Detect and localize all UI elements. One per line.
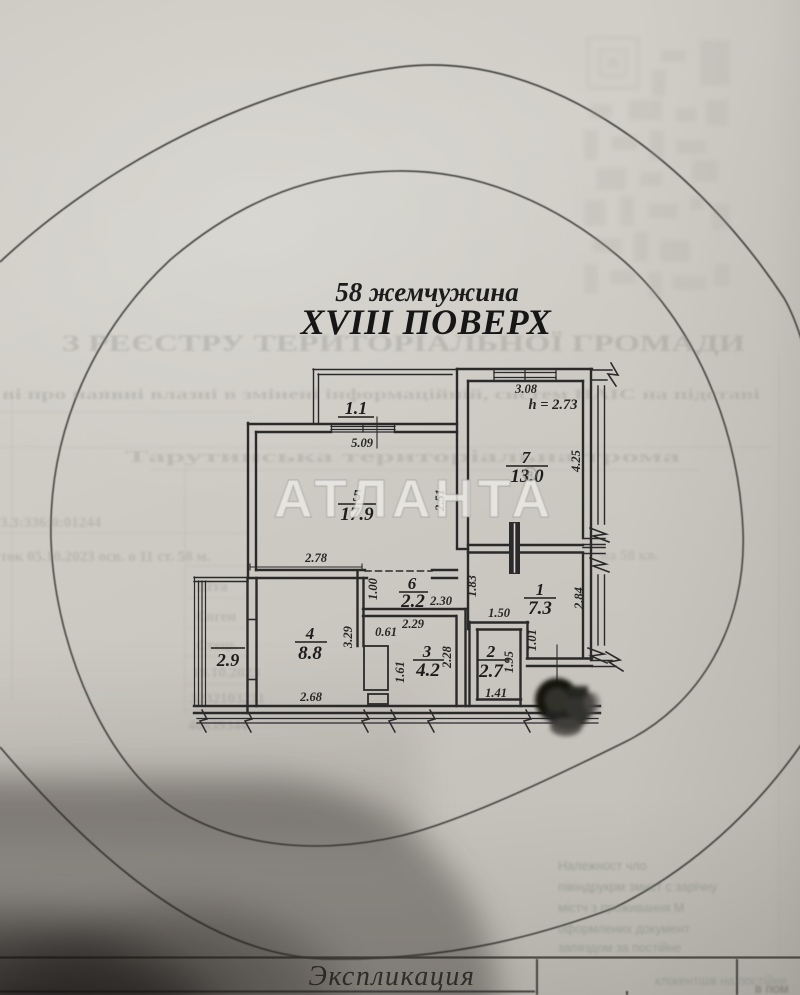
svg-text:2.78: 2.78 [304, 551, 328, 565]
svg-text:2.7: 2.7 [478, 661, 504, 682]
svg-text:0.61: 0.61 [375, 625, 397, 639]
svg-text:3.08: 3.08 [514, 382, 538, 396]
svg-text:2.2: 2.2 [400, 591, 425, 612]
svg-text:2.30: 2.30 [429, 594, 453, 608]
svg-text:2: 2 [486, 642, 496, 661]
svg-text:Належност чло: Належност чло [558, 859, 647, 873]
svg-text:АТЛАНТА: АТЛАНТА [274, 469, 554, 529]
svg-text:1.00: 1.00 [366, 577, 380, 600]
svg-text:4: 4 [305, 624, 315, 643]
svg-text:півіндрукрм змист с зарічну: півіндрукрм змист с зарічну [558, 880, 718, 894]
svg-text:1: 1 [536, 580, 545, 599]
svg-text:1.50: 1.50 [488, 606, 511, 620]
svg-text:оформлених документ: оформлених документ [558, 922, 690, 936]
svg-text:ток 05.10.2023 осв. о 11 ст.: ток 05.10.2023 осв. о 11 ст. 58 м. [0, 549, 211, 565]
svg-text:3: 3 [422, 642, 432, 661]
svg-text:на 58 кв.: на 58 кв. [600, 548, 659, 564]
svg-text:ві про наявні влазні в змінені: ві про наявні влазні в змінені інформаці… [2, 387, 760, 403]
svg-text:2.28: 2.28 [440, 645, 454, 669]
svg-text:7.3: 7.3 [528, 598, 552, 619]
svg-text:1.01: 1.01 [525, 629, 539, 651]
svg-text:4.25: 4.25 [569, 450, 583, 473]
svg-text:1.83: 1.83 [465, 575, 479, 597]
svg-text:в пом: в пом [755, 981, 789, 995]
svg-text:3.3:336:0:01244: 3.3:336:0:01244 [0, 515, 102, 531]
svg-text:h = 2.73: h = 2.73 [529, 397, 578, 413]
svg-text:2.29: 2.29 [401, 617, 425, 631]
svg-text:1.95: 1.95 [502, 651, 516, 673]
svg-text:1.1: 1.1 [345, 398, 368, 418]
svg-text:XVIII ПОВЕРХ: XVIII ПОВЕРХ [300, 302, 552, 342]
svg-text:запяздом за постійне: запяздом за постійне [558, 941, 682, 955]
svg-text:5.09: 5.09 [351, 436, 374, 450]
svg-text:2.84: 2.84 [572, 587, 586, 610]
svg-text:3.29: 3.29 [341, 625, 355, 649]
svg-text:містч з проживання М: містч з проживання М [558, 901, 684, 915]
svg-text:1.41: 1.41 [485, 686, 507, 700]
svg-text:R: R [527, 470, 534, 480]
